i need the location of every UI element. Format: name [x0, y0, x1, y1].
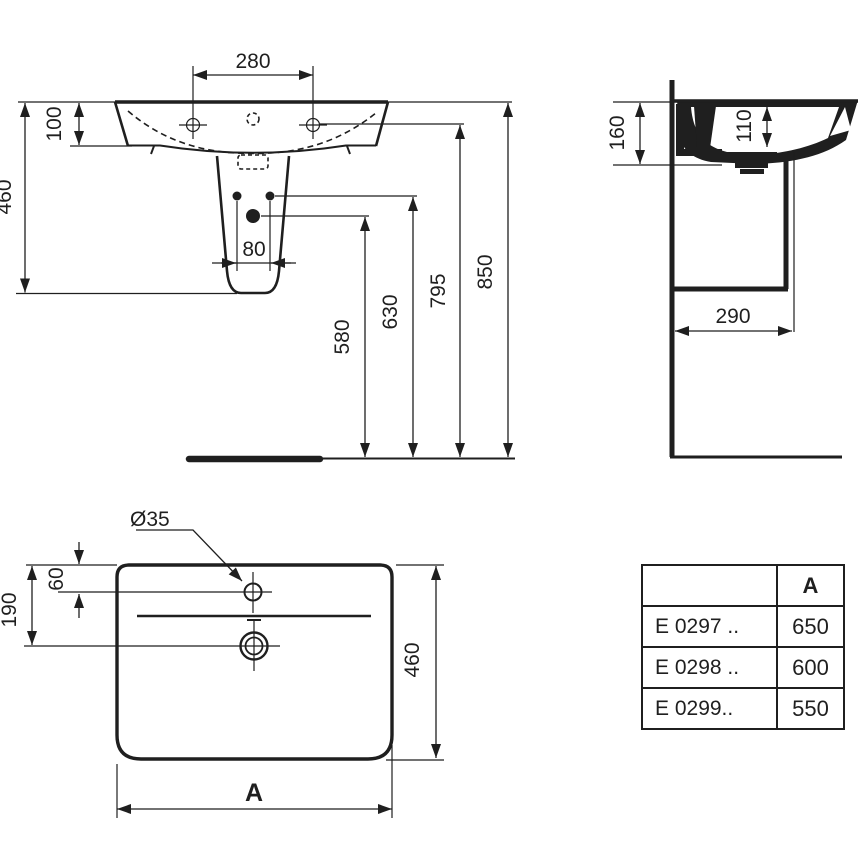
width-cell: 600 — [777, 647, 844, 688]
dim-label-depth: 290 — [715, 305, 750, 328]
label-tap-hole-diameter: Ø35 — [130, 508, 170, 531]
dim-label-height-drain: 580 — [331, 319, 354, 354]
model-width-table: A E 0297 .. 650 E 0298 .. 600 E 0299.. 5… — [641, 564, 845, 730]
bracket-mark-right — [347, 146, 350, 154]
dim-label-fixing-spacing: 80 — [242, 238, 265, 261]
washbasin-dimension-drawing: 280 100 460 80 580 630 795 850 — [0, 0, 868, 868]
wall-bracket — [676, 104, 684, 151]
drain-flange — [727, 152, 777, 160]
dim-label-height-rim: 850 — [474, 254, 497, 289]
semi-pedestal-outline — [217, 156, 289, 293]
model-cell: E 0297 .. — [642, 606, 777, 647]
front-view: 280 100 460 80 580 630 795 850 — [0, 50, 515, 459]
table-row: E 0299.. 550 — [642, 688, 844, 729]
width-cell: 550 — [777, 688, 844, 729]
drain-outlet-hole — [246, 209, 260, 223]
dim-label-drain-offset: 190 — [0, 592, 21, 627]
side-view: 160 110 290 — [606, 80, 858, 457]
header-model-cell — [642, 565, 777, 606]
fixing-hole-right — [266, 192, 275, 201]
bracket-foot — [676, 149, 722, 156]
dim-label-height-taps: 795 — [427, 273, 450, 308]
table-header-row: A — [642, 565, 844, 606]
bracket-mark-left — [151, 146, 154, 154]
header-width-cell: A — [777, 565, 844, 606]
technical-drawing-page: 280 100 460 80 580 630 795 850 — [0, 0, 868, 868]
drain-body — [735, 161, 768, 168]
dim-label-overall-width: A — [245, 779, 263, 807]
fixing-hole-left — [233, 192, 242, 201]
basin-underside — [128, 146, 376, 153]
trap-cover-dashed — [238, 155, 268, 169]
dim-label-overall-depth: 460 — [401, 642, 424, 677]
dim-label-overall-height: 460 — [0, 179, 16, 214]
top-view: Ø35 190 60 460 A — [0, 508, 444, 818]
mounting-bracket — [694, 106, 716, 148]
center-tap-hole-dashed — [247, 113, 259, 125]
basin-left-edge — [115, 102, 128, 146]
dim-label-basin-height: 100 — [43, 106, 66, 141]
table-row: E 0297 .. 650 — [642, 606, 844, 647]
width-cell: 650 — [777, 606, 844, 647]
model-cell: E 0298 .. — [642, 647, 777, 688]
dim-label-height-fixing: 630 — [379, 294, 402, 329]
drain-tail — [740, 169, 764, 174]
dim-label-wall-drop: 160 — [606, 115, 629, 150]
table-row: E 0298 .. 600 — [642, 647, 844, 688]
model-cell: E 0299.. — [642, 688, 777, 729]
dim-label-bowl-depth: 110 — [733, 109, 756, 142]
dim-label-tap-offset: 60 — [45, 567, 68, 590]
dim-label-tap-spacing: 280 — [235, 50, 270, 73]
leader-tap-hole — [136, 530, 242, 581]
